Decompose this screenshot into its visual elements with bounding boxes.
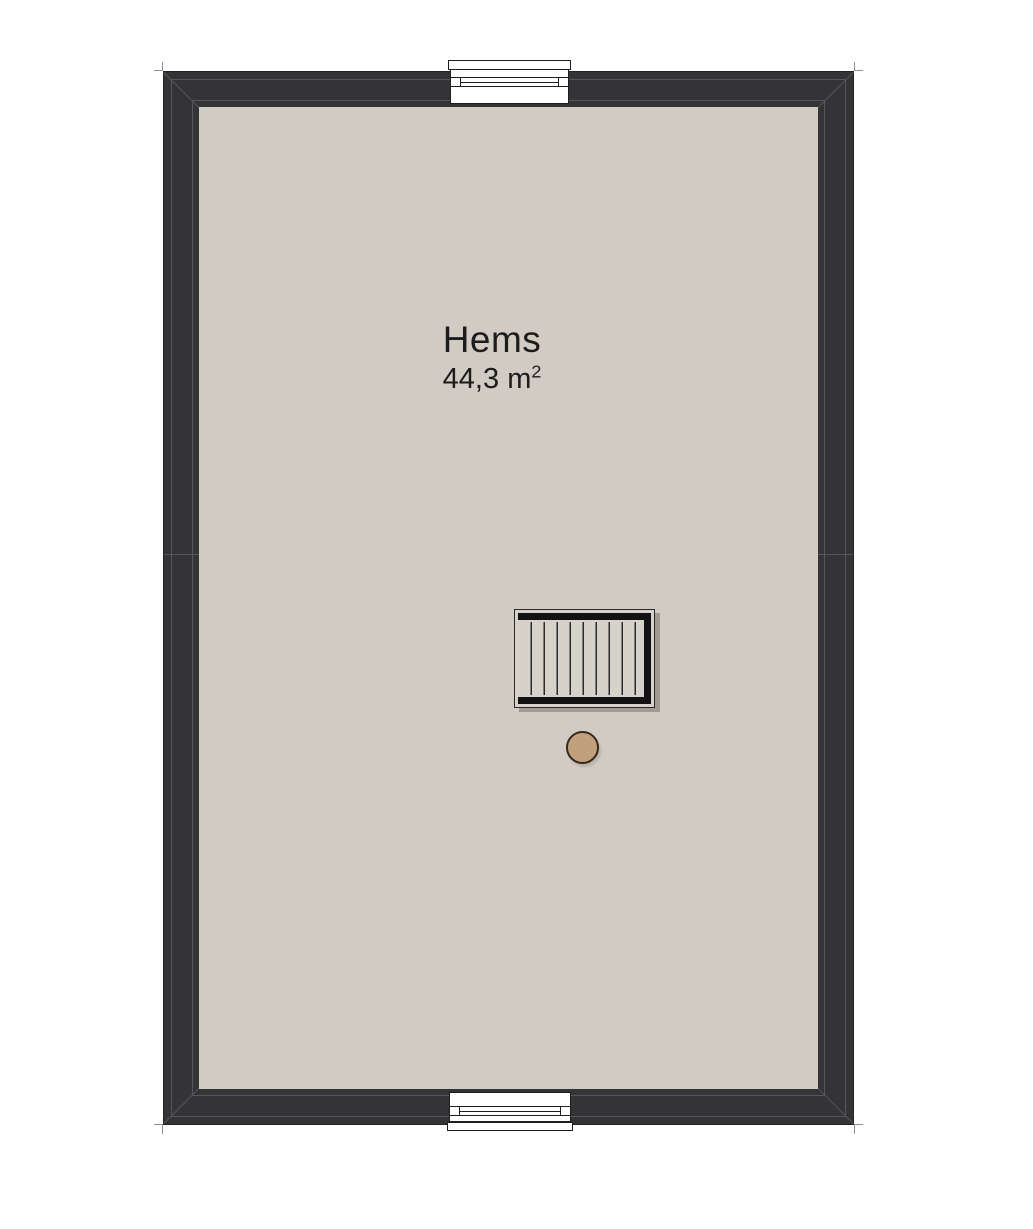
room-label: Hems 44,3m2 — [342, 319, 642, 398]
room-area-value: 44,3 — [443, 363, 499, 395]
corner-tick — [162, 1125, 163, 1134]
exterior-wall-outline — [163, 71, 854, 1125]
wall-seam-left — [164, 554, 199, 555]
wall-seam-right — [818, 554, 853, 555]
floor-plan-canvas: Hems 44,3m2 — [0, 0, 1033, 1229]
floor-area — [199, 107, 818, 1089]
stair-stringer-right — [644, 613, 651, 704]
window-glass-line — [459, 1111, 561, 1112]
window-bottom — [449, 1092, 571, 1122]
corner-tick — [854, 1124, 863, 1125]
corner-tick — [162, 62, 163, 71]
stair-treads — [519, 622, 641, 695]
room-area-unit: m — [507, 363, 531, 395]
room-area-exponent: 2 — [531, 361, 541, 381]
corner-tick — [854, 1125, 855, 1134]
room-area-label: 44,3m2 — [342, 361, 642, 398]
stair-stringer-bottom — [518, 697, 651, 704]
stair-stringer-top — [518, 613, 651, 620]
support-column — [566, 731, 599, 764]
window-top — [450, 69, 569, 104]
room-name: Hems — [342, 319, 642, 361]
window-frame — [451, 77, 568, 87]
window-frame — [450, 1106, 570, 1116]
corner-tick — [854, 62, 855, 71]
window-glass-line — [460, 82, 559, 83]
corner-tick — [854, 70, 863, 71]
staircase — [514, 609, 655, 708]
window-sill-bottom — [447, 1122, 573, 1131]
